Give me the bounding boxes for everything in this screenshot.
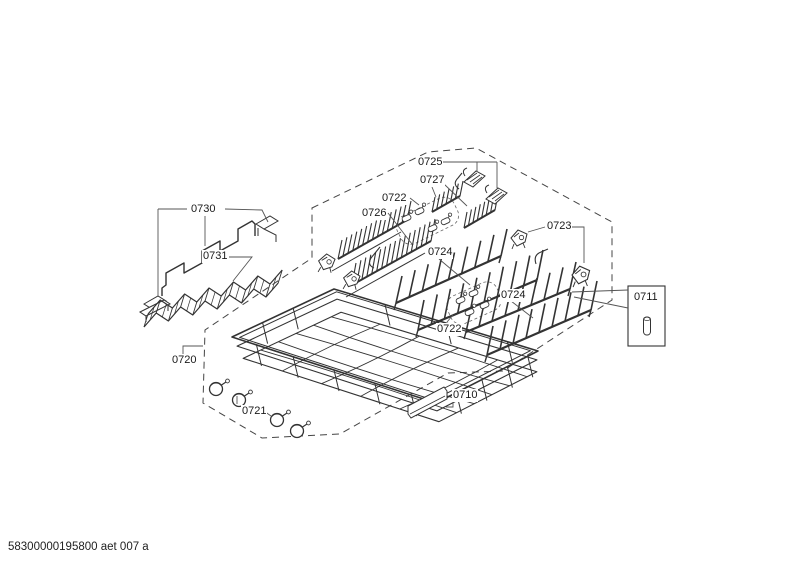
part-label-0711: 0711 — [633, 291, 659, 304]
part-label-0722-top: 0722 — [381, 192, 407, 205]
part-label-0731: 0731 — [202, 250, 228, 263]
part-0730-rail — [140, 216, 278, 322]
part-0731-folding-rack — [144, 270, 282, 327]
part-label-0726: 0726 — [361, 207, 387, 220]
part-label-0720: 0720 — [171, 354, 197, 367]
document-code: 58300000195800 aet 007 a — [8, 541, 149, 555]
part-label-0724-mid: 0724 — [427, 246, 453, 259]
part-label-0725: 0725 — [417, 156, 443, 169]
part-label-0721: 0721 — [241, 405, 267, 418]
diagram-line-art — [0, 0, 800, 566]
wire-hooks — [370, 173, 548, 268]
part-label-0722-bottom: 0722 — [436, 323, 462, 336]
part-0720-basket — [232, 289, 538, 422]
exploded-parts-diagram: 0725 0727 0722 0730 0726 0723 0724 0731 … — [0, 0, 800, 566]
pin-glyph — [644, 317, 651, 335]
part-label-0710: 0710 — [452, 389, 478, 402]
part-0710-strip — [408, 387, 447, 418]
part-label-0727: 0727 — [419, 174, 445, 187]
part-label-0724-right: 0724 — [500, 289, 526, 302]
part-label-0723: 0723 — [546, 220, 572, 233]
part-0725-caps — [463, 168, 507, 204]
part-label-0730: 0730 — [190, 203, 216, 216]
